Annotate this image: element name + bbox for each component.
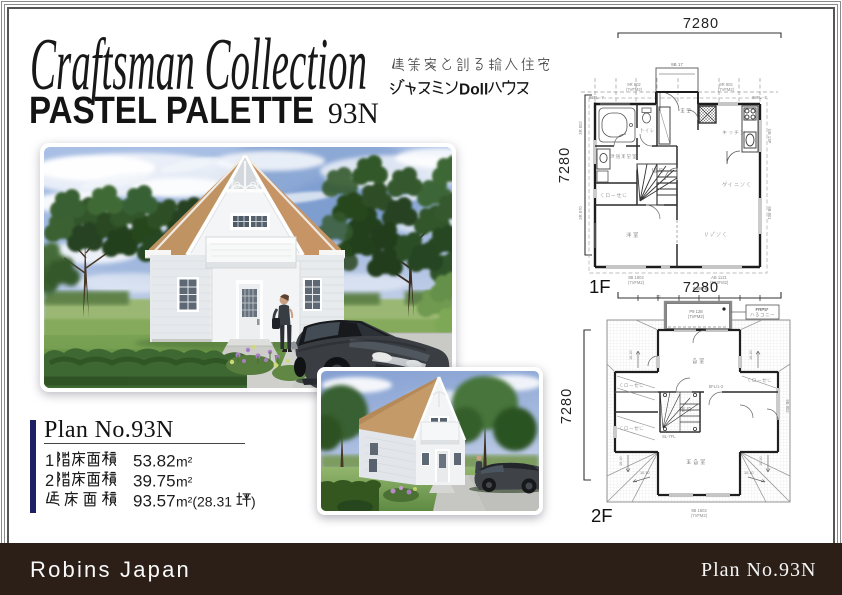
svg-text:10.10: 10.10 [629,350,633,360]
svg-text:3R 870: 3R 870 [578,206,583,220]
svg-text:2F: 2F [591,505,613,526]
svg-text:10.10: 10.10 [640,471,650,475]
svg-text:m²: m² [176,474,193,490]
svg-text:89FL··7: 89FL··7 [752,95,767,100]
svg-text:8L-7FL: 8L-7FL [662,434,676,439]
svg-text:7280: 7280 [559,388,575,424]
svg-text:1: 1 [45,452,54,470]
svg-text:53.82: 53.82 [133,452,176,471]
svg-text:9B 801: 9B 801 [767,206,772,220]
svg-text:m²(28.31: m²(28.31 [176,494,232,510]
svg-text:GB 13P: GB 13P [767,129,772,144]
svg-text:10.10: 10.10 [749,350,753,360]
svg-text:7280: 7280 [683,16,719,32]
svg-text:3R 802: 3R 802 [578,121,583,135]
svg-text:m²: m² [176,454,193,470]
svg-text:FRP­5*: FRP­5* [756,307,769,312]
svg-text:89FL··7: 89FL··7 [589,95,604,100]
svg-text:(7VFM2): (7VFM2) [691,513,708,518]
svg-text:9B 802: 9B 802 [785,399,790,413]
svg-text:Doll: Doll [459,82,488,99]
svg-text:PASTEL PALETTE: PASTEL PALETTE [29,90,314,132]
svg-text:8B9B-8: 8B9B-8 [693,286,708,291]
svg-text:(7VFM2): (7VFM2) [688,314,705,319]
svg-text:8FL/1-2: 8FL/1-2 [709,384,724,389]
svg-text:39.75: 39.75 [133,472,176,491]
svg-text:10.10: 10.10 [744,471,754,475]
svg-text:2: 2 [45,472,54,490]
svg-text:9B 17: 9B 17 [671,62,683,67]
svg-text:93N: 93N [328,98,379,130]
svg-text:(7VFM2): (7VFM2) [626,87,643,92]
svg-text:): ) [251,494,256,510]
svg-text:10.10: 10.10 [759,456,763,466]
svg-text:10.10: 10.10 [619,456,623,466]
svg-text:7280: 7280 [557,147,573,183]
svg-text:(7VFM2): (7VFM2) [718,87,735,92]
svg-text:93.57: 93.57 [133,492,176,511]
